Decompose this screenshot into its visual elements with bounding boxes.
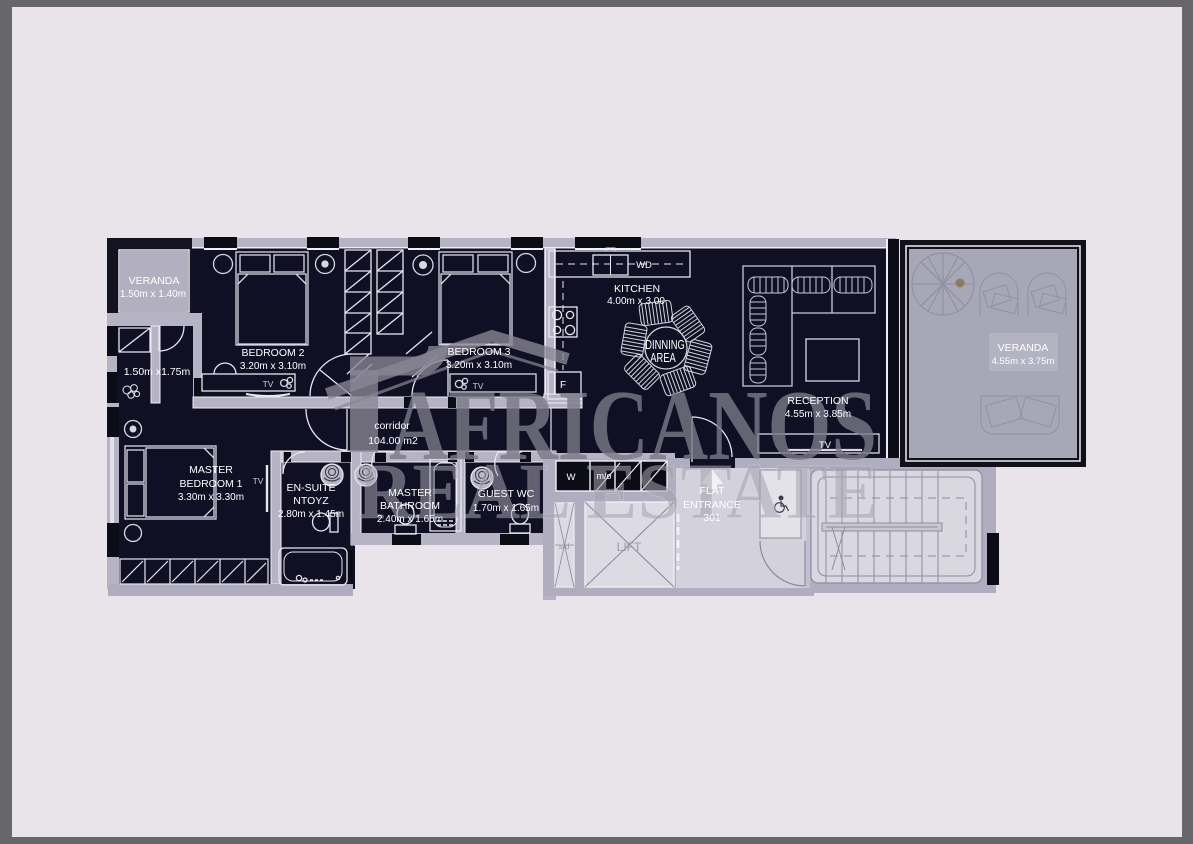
svg-text:corridor: corridor bbox=[374, 420, 410, 432]
svg-text:DINNING: DINNING bbox=[645, 339, 684, 353]
svg-text:GUEST WC: GUEST WC bbox=[478, 488, 535, 500]
svg-text:WD: WD bbox=[636, 260, 652, 271]
svg-text:FLAT: FLAT bbox=[700, 485, 725, 497]
svg-text:BEDROOM 3: BEDROOM 3 bbox=[447, 346, 510, 358]
svg-text:1.70m x 1.65m: 1.70m x 1.65m bbox=[473, 503, 539, 514]
svg-text:1.50m x 1.40m: 1.50m x 1.40m bbox=[120, 289, 186, 300]
svg-text:2.40m x 1.65m: 2.40m x 1.65m bbox=[377, 514, 443, 525]
svg-text:ENTRANCE: ENTRANCE bbox=[683, 499, 741, 511]
svg-text:LIFT: LIFT bbox=[617, 540, 642, 554]
svg-text:RECEPTION: RECEPTION bbox=[787, 395, 848, 407]
svg-text:TV: TV bbox=[819, 440, 832, 451]
svg-text:VERANDA: VERANDA bbox=[998, 342, 1049, 354]
svg-text:m/o: m/o bbox=[596, 471, 611, 481]
svg-text:F: F bbox=[560, 380, 566, 391]
svg-text:4.55m x 3.85m: 4.55m x 3.85m bbox=[785, 409, 851, 420]
svg-text:VERANDA: VERANDA bbox=[129, 275, 180, 287]
svg-text:TV: TV bbox=[253, 476, 264, 486]
svg-text:W: W bbox=[567, 472, 576, 483]
svg-text:4.00m x 3.00: 4.00m x 3.00 bbox=[607, 296, 665, 307]
svg-text:TV: TV bbox=[473, 381, 484, 391]
svg-text:KITCHEN: KITCHEN bbox=[614, 283, 660, 295]
svg-text:MASTER: MASTER bbox=[388, 487, 432, 499]
svg-text:1.50m x1.75m: 1.50m x1.75m bbox=[124, 366, 191, 378]
svg-text:3.20m x 3.10m: 3.20m x 3.10m bbox=[240, 361, 306, 372]
svg-text:3.30m x 3.30m: 3.30m x 3.30m bbox=[178, 492, 244, 503]
svg-text:BATHROOM: BATHROOM bbox=[380, 500, 440, 512]
svg-text:4.55m x 3.75m: 4.55m x 3.75m bbox=[992, 356, 1055, 367]
svg-text:AREA: AREA bbox=[650, 352, 676, 366]
svg-text:301: 301 bbox=[703, 512, 721, 524]
svg-text:104.00 m2: 104.00 m2 bbox=[368, 435, 418, 447]
svg-text:EN-SUITE: EN-SUITE bbox=[286, 482, 335, 494]
svg-text:TV: TV bbox=[263, 379, 274, 389]
svg-text:2.80m x 1.45m: 2.80m x 1.45m bbox=[278, 509, 344, 520]
svg-text:MASTER: MASTER bbox=[189, 464, 233, 476]
svg-text:3.20m x 3.10m: 3.20m x 3.10m bbox=[446, 360, 512, 371]
svg-text:NTOYZ: NTOYZ bbox=[293, 495, 329, 507]
svg-text:s/d: s/d bbox=[559, 542, 570, 551]
svg-text:BEDROOM 2: BEDROOM 2 bbox=[241, 347, 304, 359]
svg-text:BEDROOM 1: BEDROOM 1 bbox=[179, 478, 242, 490]
